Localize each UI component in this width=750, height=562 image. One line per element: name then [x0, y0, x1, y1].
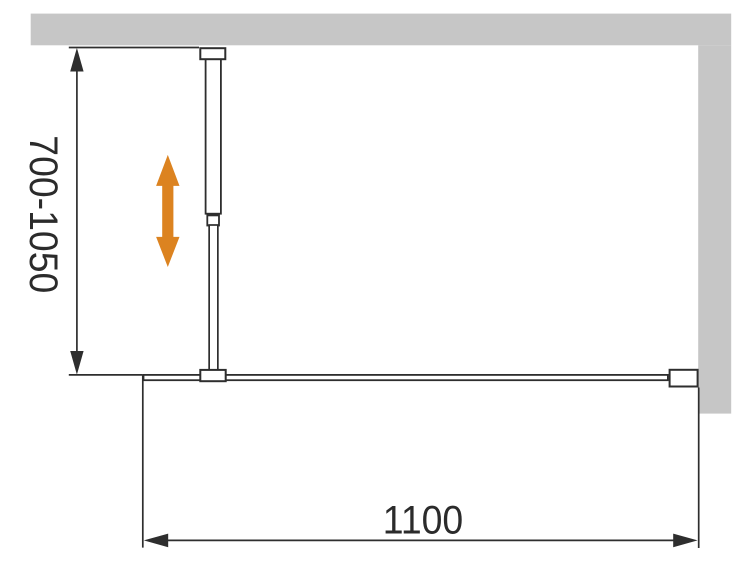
- svg-text:700-1050: 700-1050: [21, 135, 65, 293]
- svg-text:1100: 1100: [383, 499, 463, 543]
